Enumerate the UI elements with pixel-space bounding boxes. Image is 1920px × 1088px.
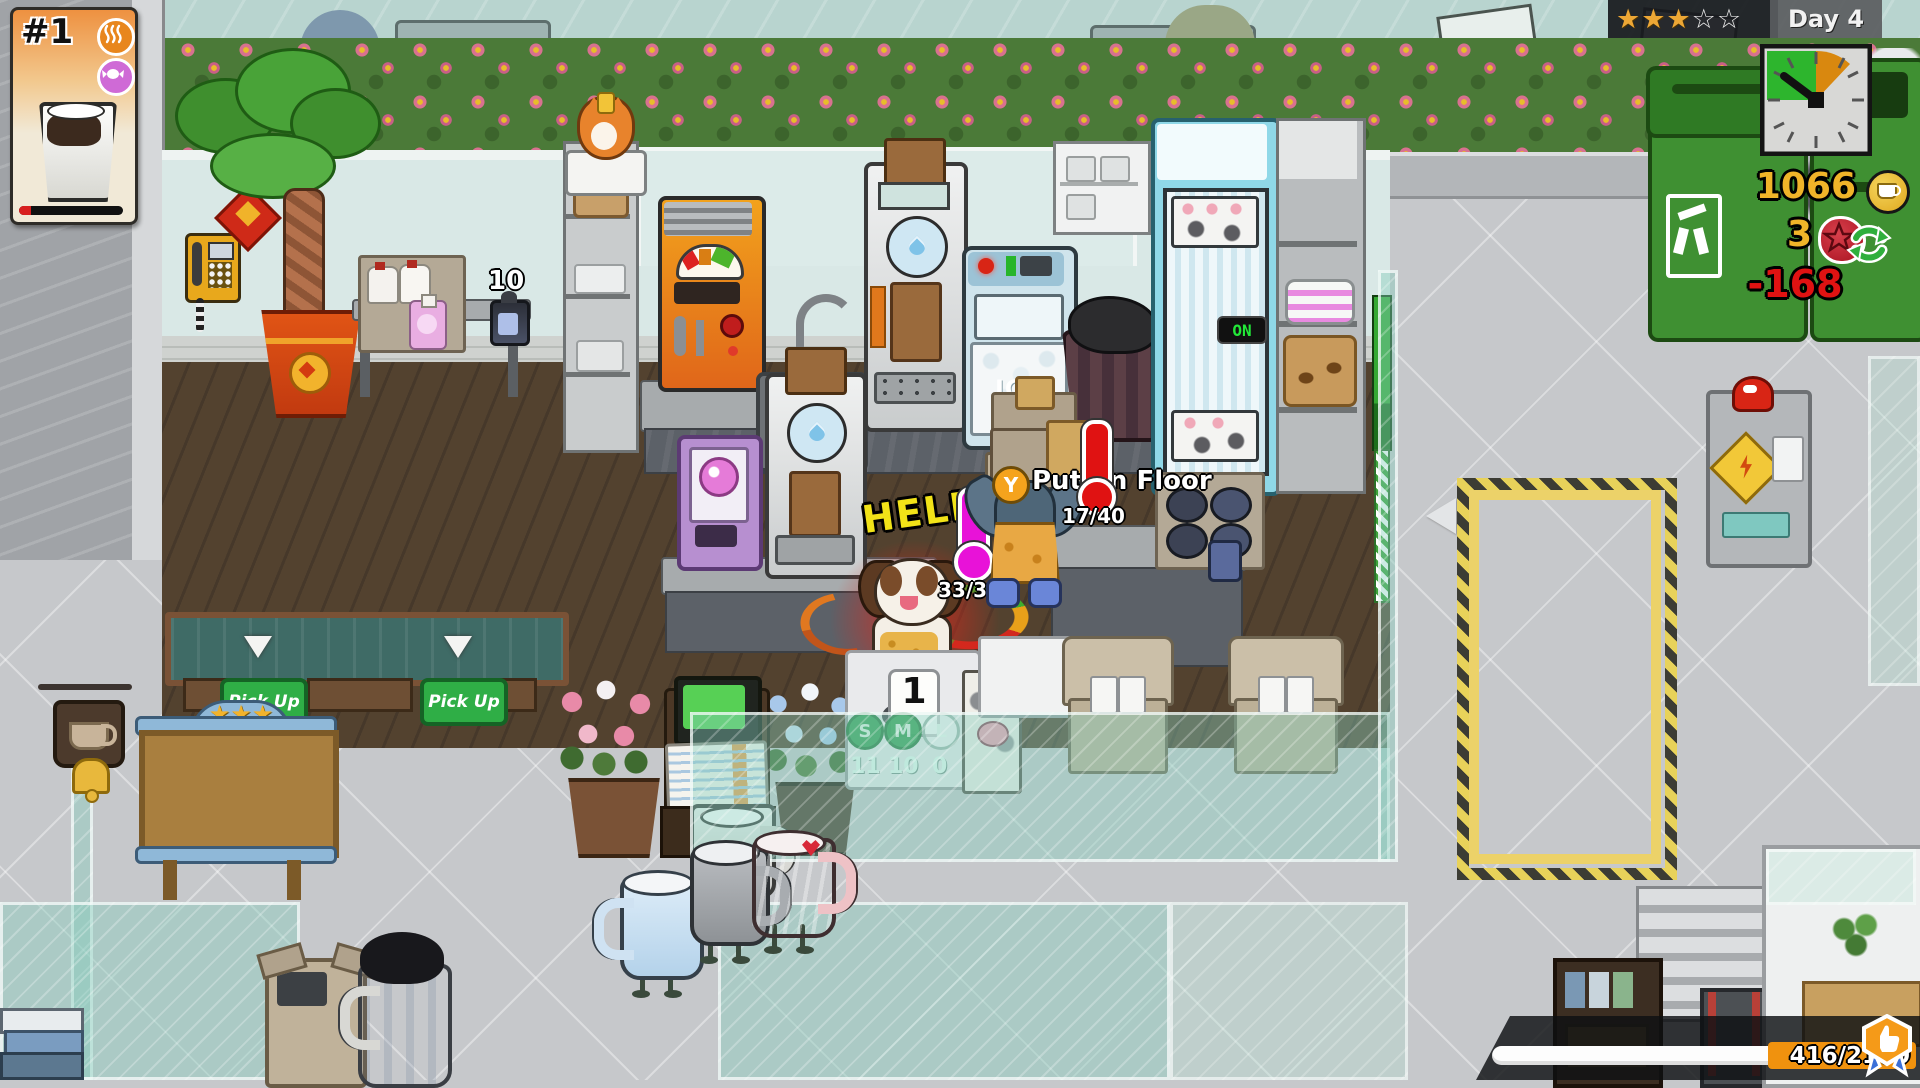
glass-room-bottom-right [1170,902,1408,1080]
customer-mug-pink[interactable] [742,832,838,958]
order-timer-track [19,206,123,215]
order-card[interactable]: #1 [10,7,138,225]
money-tree[interactable] [175,48,375,420]
lucky-cat-figure [565,92,641,192]
book-stack [0,1008,82,1080]
pickup-sign-right: Pick Up [420,678,508,726]
coin-row: 1066 [1700,166,1910,210]
stock-shelf[interactable] [1276,118,1366,494]
bouquet-pink [548,672,670,790]
planter-pink [562,778,666,858]
day-label: Day 4 [1788,5,1864,33]
stars-filled: ★★★ [1616,4,1692,35]
coffee-bean-bags [1283,335,1357,407]
shop-plant [1828,911,1884,963]
warning-cabinet [1706,390,1812,568]
day-panel: Day 4 [1770,0,1882,38]
tree-trunk [283,188,325,324]
hot-drink-icon [97,18,135,56]
game-screen: { "hud": { "order_card": { "id": "#1", "… [0,0,1920,1080]
action-button-label: Y [1004,473,1018,497]
bell[interactable] [72,758,110,794]
canned-drink[interactable] [490,300,530,346]
espresso-roaster-machine[interactable] [658,196,766,392]
fridge-power-indicator: ON [1217,316,1267,344]
glass-wall-right [1378,270,1398,862]
hot-water-dispenser[interactable] [864,162,968,432]
down-arrow [444,636,472,672]
customer-mug-hair[interactable] [352,924,452,1080]
recycle-arrows-icon [1846,224,1892,264]
order-number: #1 [21,12,73,52]
coin-amount: 1066 [1736,166,1856,207]
milk-jug-box[interactable] [358,255,466,353]
action-button-y[interactable]: Y [992,466,1030,504]
shop-sign-rod [38,684,132,690]
stars-empty: ☆☆ [1692,4,1742,35]
glass-panel-far-right [1868,356,1920,686]
direction-arrow-left [1408,498,1456,534]
gauge [676,244,744,280]
sweet-icon [97,58,135,96]
expansion-plot-frame[interactable] [1457,478,1677,880]
coffee-cup-item [39,102,117,202]
can-stock-count: 10 [488,266,524,296]
towel-rolls [1285,279,1355,325]
game-clock [1760,44,1872,156]
milk-cartons [1171,410,1259,462]
white-cabinet [978,636,1072,718]
like-badge-icon [1854,1014,1920,1080]
rating-bar: ★★★ ☆☆ [1608,0,1778,38]
jar [1208,540,1242,582]
queue-number: 1 [901,672,926,712]
water-dispenser-2[interactable] [765,373,867,579]
expense-amount: -168 [1740,262,1850,306]
recycle-count: 3 [1780,214,1812,255]
plate-stack [574,264,626,294]
recycle-row: 3 [1780,212,1920,262]
action-prompt-label: Put on Floor [1032,466,1212,496]
cup-stack [576,340,624,372]
milk-cartons [1171,196,1259,248]
milk-fridge[interactable]: ON [1151,118,1281,496]
menu-board[interactable] [135,716,335,886]
coin-icon [1866,170,1910,214]
milk-foamer-machine[interactable] [677,435,763,571]
order-timer-fill [19,206,31,215]
hair [360,932,444,984]
syrup-bottle [409,300,447,350]
carry-meter-value: 17/40 [1062,504,1125,528]
down-arrow [244,636,272,672]
red-cone [1732,376,1774,412]
wall-cup-cabinet [1053,141,1151,235]
tree-pot [257,310,365,418]
